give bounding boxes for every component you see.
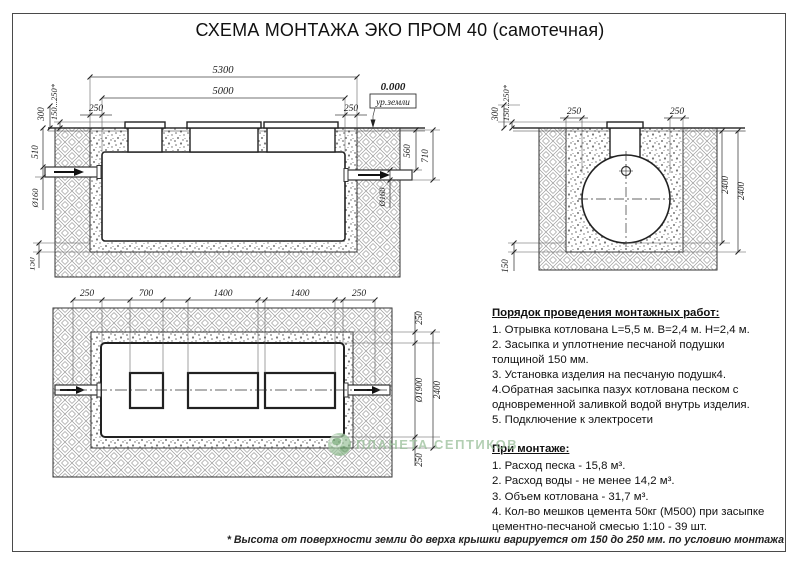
dim-depth-2400: 2400 [720, 176, 730, 195]
dim-width-2400: 2400 [736, 182, 746, 201]
instruction-item: 5. Подключение к электросети [492, 413, 778, 428]
dim-300: 300 [490, 107, 500, 122]
dim-zero-level: 0.000 [381, 81, 406, 93]
montage-item: 2. Расход воды - не менее 14,2 м³. [492, 474, 778, 489]
dim-560: 560 [402, 144, 412, 158]
dim-300: 300 [36, 107, 46, 122]
instruction-item: 1. Отрывка котлована L=5,5 м. В=2,4 м. Н… [492, 323, 778, 338]
neck-2 [190, 128, 258, 152]
neck-1-lid [125, 122, 165, 128]
instruction-item: 3. Установка изделия на песчаную подушк4… [492, 368, 778, 383]
montage-item: 4. Кол-во мешков цемента 50кг (М500) при… [492, 505, 778, 535]
dim-dia-1900: Ø1900 [414, 377, 424, 403]
dim-offset-left: 250 [80, 289, 95, 299]
page-title: СХЕМА МОНТАЖА ЭКО ПРОМ 40 (самотечная) [0, 20, 800, 41]
dim-dia160-right: Ø160 [377, 187, 387, 208]
drawing-end-section-view: 250 250 300 150...250* 2400 2400 150 [490, 85, 760, 287]
montage-heading: При монтаже: [492, 442, 778, 457]
dim-gap-left: 250 [567, 107, 582, 117]
tank-hatches [130, 373, 335, 408]
inlet-pipe [45, 166, 102, 179]
outlet-pipe [344, 169, 412, 182]
drawing-plan-view: 250 700 1400 1400 250 250 Ø1900 2400 250 [30, 288, 475, 488]
dim-710: 710 [420, 149, 430, 163]
hatch-2 [188, 373, 258, 408]
neck-3 [267, 128, 335, 152]
instructions-block: Порядок проведения монтажных работ: 1. О… [492, 306, 778, 535]
dim-tank-length: 5000 [213, 86, 235, 97]
instruction-item: 2. Засыпка и уплотнение песчаной подушки… [492, 338, 778, 368]
drawing-side-section-view: 5300 5000 250 250 0.000 ур.земли 300 150… [30, 58, 460, 290]
dim-gap-bottom: 250 [414, 453, 424, 467]
dim-offset-right: 250 [344, 104, 359, 114]
dim-gap-top: 250 [414, 311, 424, 325]
dim-offset-right: 250 [352, 289, 367, 299]
level-arrow-icon [371, 120, 376, 129]
dim-1400-a: 1400 [214, 289, 233, 299]
dim-150-cushion: 150 [30, 257, 37, 271]
dim-1400-b: 1400 [291, 289, 310, 299]
neck-3-lid [264, 122, 338, 128]
dim-150-cushion: 150 [500, 259, 510, 273]
montage-item: 3. Объем котлована - 31,7 м³. [492, 490, 778, 505]
hatch-1 [130, 373, 163, 408]
hatch-3 [265, 373, 335, 408]
dim-510: 510 [30, 145, 40, 159]
dim-150-250: 150...250* [49, 83, 59, 120]
dim-gap-right: 250 [670, 107, 685, 117]
tank-necks [125, 122, 338, 152]
instruction-item: 4.Обратная засыпка пазух котлована песко… [492, 383, 778, 413]
page: { "title": "СХЕМА МОНТАЖА ЭКО ПРОМ 40 (с… [0, 0, 800, 565]
instructions-heading: Порядок проведения монтажных работ: [492, 306, 778, 321]
montage-item: 1. Расход песка - 15,8 м³. [492, 459, 778, 474]
dim-150-250: 150...250* [501, 85, 511, 121]
ground-level-label: ур.земли [375, 98, 410, 108]
dim-700: 700 [139, 289, 154, 299]
footnote: * Высота от поверхности земли до верха к… [24, 534, 784, 546]
tank-neck [607, 122, 643, 157]
tank-body [102, 152, 345, 241]
dim-offset-left: 250 [89, 104, 104, 114]
dim-dia160-left: Ø160 [30, 188, 40, 209]
neck-2-lid [187, 122, 261, 128]
dim-width-2400: 2400 [432, 381, 442, 400]
neck-1 [128, 128, 162, 152]
dim-overall-length: 5300 [213, 65, 235, 76]
